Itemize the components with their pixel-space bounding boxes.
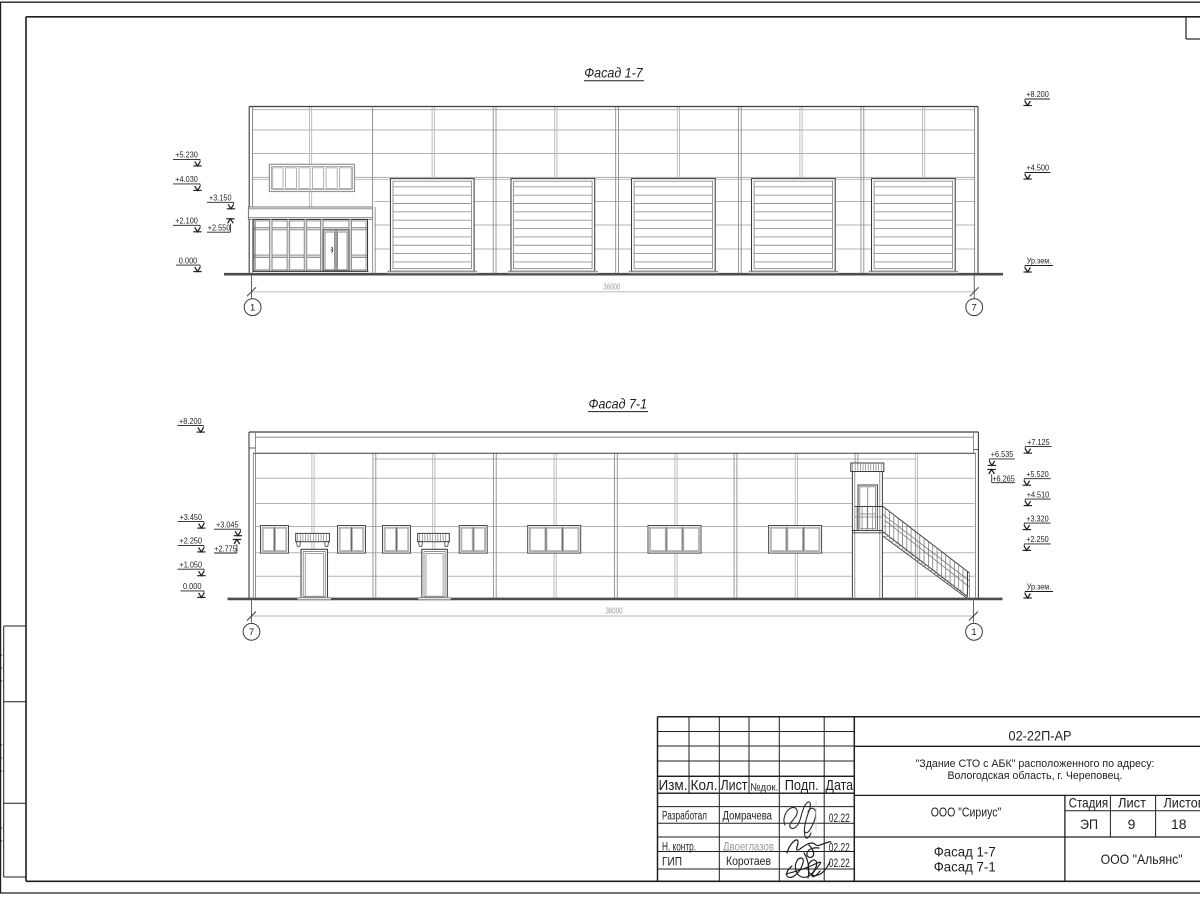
svg-text:ГИП: ГИП [662, 857, 682, 869]
svg-text:+2.250: +2.250 [180, 536, 203, 546]
svg-text:Вологодская область, г. Черепо: Вологодская область, г. Череповец. [948, 770, 1123, 782]
svg-text:36000: 36000 [606, 607, 623, 616]
svg-text:36000: 36000 [603, 283, 620, 292]
svg-text:+4.510: +4.510 [1027, 489, 1050, 499]
svg-text:+5.520: +5.520 [1026, 469, 1049, 479]
svg-text:7: 7 [249, 627, 254, 638]
svg-text:+3.450: +3.450 [180, 512, 203, 522]
svg-text:Н. контр.: Н. контр. [662, 841, 696, 853]
svg-text:Стадия: Стадия [1069, 794, 1109, 810]
svg-text:02-22П-АР: 02-22П-АР [1009, 728, 1072, 744]
svg-text:18: 18 [1171, 816, 1187, 832]
svg-text:02.22: 02.22 [829, 813, 850, 825]
svg-text:ЭП: ЭП [1080, 816, 1098, 832]
svg-text:Фасад 7-1: Фасад 7-1 [589, 395, 648, 411]
svg-text:Ур.зем.: Ур.зем. [1027, 256, 1052, 266]
svg-text:№док.: №док. [750, 782, 778, 794]
svg-text:+1.050: +1.050 [180, 559, 203, 569]
svg-text:+2.100: +2.100 [175, 216, 198, 226]
svg-text:9: 9 [1128, 816, 1136, 832]
svg-text:02.22: 02.22 [829, 842, 850, 854]
svg-text:02.22: 02.22 [829, 858, 850, 870]
svg-text:+7.125: +7.125 [1027, 437, 1050, 447]
svg-text:ООО "Сириус": ООО "Сириус" [931, 806, 1002, 820]
svg-text:+4.500: +4.500 [1027, 163, 1050, 173]
svg-text:Коротаев: Коротаев [726, 856, 771, 868]
svg-text:Фасад 1-7: Фасад 1-7 [934, 844, 996, 860]
svg-text:+5.230: +5.230 [175, 150, 198, 160]
svg-text:1: 1 [971, 627, 976, 638]
svg-text:Двоеглазов: Двоеглазов [723, 841, 774, 853]
svg-text:1: 1 [250, 303, 255, 314]
svg-text:Подп.: Подп. [785, 778, 819, 794]
svg-text:ООО "Альянс": ООО "Альянс" [1101, 851, 1183, 867]
svg-text:+8.200: +8.200 [1026, 89, 1049, 99]
svg-text:7: 7 [972, 303, 977, 314]
svg-text:Листов: Листов [1164, 794, 1200, 810]
svg-text:Лист: Лист [721, 778, 748, 794]
svg-text:Домрачева: Домрачева [723, 811, 773, 823]
svg-text:+2.550: +2.550 [208, 223, 231, 233]
svg-text:+6.535: +6.535 [991, 449, 1014, 459]
svg-text:Фасад 7-1: Фасад 7-1 [934, 858, 996, 874]
svg-text:Кол.: Кол. [691, 778, 718, 794]
svg-text:+8.200: +8.200 [179, 416, 202, 426]
svg-text:+2.775: +2.775 [214, 544, 237, 554]
svg-text:Фасад 1-7: Фасад 1-7 [584, 65, 644, 81]
svg-text:+4.030: +4.030 [175, 174, 198, 184]
svg-text:+6.265: +6.265 [992, 473, 1015, 483]
svg-text:+2.250: +2.250 [1026, 534, 1049, 544]
svg-text:Дата: Дата [826, 778, 854, 794]
svg-text:+3.150: +3.150 [209, 193, 232, 203]
svg-text:+3.045: +3.045 [216, 519, 239, 529]
svg-text:Лист: Лист [1118, 794, 1147, 810]
svg-text:Ур.зем.: Ур.зем. [1027, 582, 1052, 592]
svg-text:"Здание СТО с АБК" расположенн: "Здание СТО с АБК" расположенного по адр… [916, 758, 1155, 770]
svg-text:Разработал: Разработал [662, 811, 707, 823]
svg-text:0.000: 0.000 [183, 581, 202, 591]
svg-text:Изм.: Изм. [659, 778, 688, 794]
svg-text:0.000: 0.000 [179, 255, 198, 265]
svg-text:+3.320: +3.320 [1026, 513, 1049, 523]
